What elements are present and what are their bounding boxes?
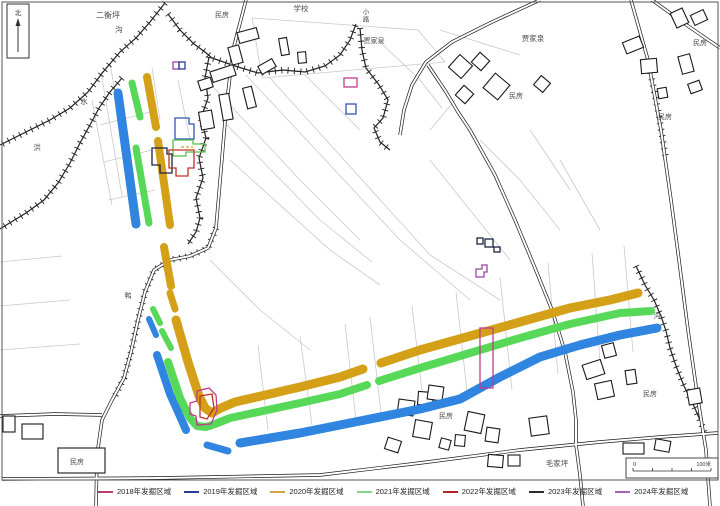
map-label: 沟 [115, 24, 123, 34]
house [455, 85, 473, 103]
map-label: 民房 [509, 91, 523, 100]
legend-item-2022: 2022年发掘区域 [443, 486, 516, 497]
house [210, 65, 236, 83]
house [199, 110, 215, 130]
north-arrow: 北 [7, 4, 29, 58]
band-2020-mid-1 [164, 247, 171, 286]
legend-label: 2024年发掘区域 [634, 486, 688, 497]
map-label: 水 [80, 96, 88, 106]
field-line [230, 160, 380, 285]
house [534, 76, 551, 93]
house [488, 454, 504, 467]
legend-item-2020: 2020年发掘区域 [270, 486, 343, 497]
field-line [246, 75, 470, 300]
band-2021-nw-1 [132, 83, 140, 117]
field-line [222, 120, 372, 262]
sq-2023-c [494, 247, 500, 252]
map-label: 小路 [363, 7, 370, 24]
field-line [252, 18, 418, 30]
poly-2019 [175, 118, 194, 139]
band-2021-mid-1 [153, 309, 160, 323]
house [690, 10, 707, 26]
map-label: 学校 [294, 3, 309, 13]
legend-swatch [184, 491, 199, 493]
legend-item-2019: 2019年发掘区域 [184, 486, 257, 497]
scale-max-label: 100米 [696, 460, 711, 468]
field-line [0, 344, 80, 350]
field-line [480, 140, 560, 230]
north-arrow-label: 北 [15, 9, 22, 17]
band-2019-mid-1 [149, 319, 156, 335]
legend-swatch [615, 491, 630, 493]
house [654, 439, 671, 452]
house [595, 380, 615, 399]
roads-layer [0, 0, 720, 506]
house [243, 86, 257, 109]
field-line [0, 256, 62, 262]
house [439, 438, 451, 450]
field-line [0, 300, 70, 306]
field-line [305, 75, 360, 130]
house [657, 87, 668, 98]
legend-swatch [270, 491, 285, 493]
legend-label: 2022年发掘区域 [462, 486, 516, 497]
field-line [178, 80, 190, 140]
road-east-inner [631, 0, 710, 506]
map-label: 贾家泉 [364, 36, 385, 45]
legend-swatch [443, 491, 458, 493]
house [279, 37, 290, 55]
poly-2024-small [476, 265, 487, 277]
legend-item-2024: 2024年发掘区域 [615, 486, 688, 497]
house [471, 52, 489, 70]
road-cross-bands-inner [470, 130, 576, 445]
field-line [214, 88, 360, 240]
road-cross-bands [470, 130, 576, 445]
house [22, 424, 43, 439]
legend-label: 2023年发掘区域 [548, 486, 602, 497]
map-label: 民房 [439, 411, 453, 420]
field-line [210, 260, 310, 350]
map-label: 鸭 [125, 291, 132, 300]
house [485, 427, 500, 443]
house [298, 52, 307, 64]
house [688, 80, 703, 94]
house [622, 36, 643, 54]
house [258, 59, 276, 75]
field-line [530, 130, 570, 190]
band-2021-mid-2 [162, 331, 171, 348]
house [413, 420, 433, 440]
house [678, 54, 694, 74]
map-figure: 二衡坪民房学校小路贾家泉贾家泉民房民房民房沟水洪鸭沟民房民房毛家坪民房北0100… [0, 0, 720, 506]
legend-item-2023: 2023年发掘区域 [529, 486, 602, 497]
house [384, 437, 401, 453]
legend-label: 2021年发掘区域 [376, 486, 430, 497]
rect-2019-nw [179, 62, 185, 69]
map-label: 毛家坪 [546, 458, 569, 468]
field-line [258, 345, 268, 430]
house [198, 77, 213, 91]
map-label: 民房 [643, 389, 657, 398]
house [623, 443, 644, 454]
map-legend: 2018年发掘区域2019年发掘区域2020年发掘区域2021年发掘区域2022… [98, 486, 688, 497]
road-bottom [2, 433, 718, 479]
band-2019-elbow [207, 445, 228, 451]
road-east [631, 0, 710, 506]
legend-item-2021: 2021年发掘区域 [357, 486, 430, 497]
field-line [430, 100, 455, 130]
gully-north-lower [0, 78, 122, 229]
rect-2018-top [344, 78, 357, 87]
house [529, 416, 549, 436]
plateau-ne-edge [360, 28, 390, 150]
sq-2023-b [485, 239, 493, 247]
map-label: 民房 [215, 10, 229, 19]
band-2019-nw [118, 93, 136, 224]
map-label: 二衡坪 [96, 10, 120, 20]
map-label: 贾家泉 [522, 33, 545, 43]
house [464, 411, 485, 433]
legend-item-2018: 2018年发掘区域 [98, 486, 171, 497]
band-2020-mid-2 [170, 293, 175, 309]
map-label: 民房 [658, 112, 672, 121]
map-label: 洪 [33, 142, 41, 152]
house [455, 435, 466, 447]
excavation-map: 二衡坪民房学校小路贾家泉贾家泉民房民房民房沟水洪鸭沟民房民房毛家坪民房北0100… [0, 0, 720, 506]
house [448, 54, 472, 78]
scale-bar: 0100米 [626, 458, 718, 478]
rect-2024-nw [173, 62, 179, 69]
house [625, 369, 637, 384]
legend-label: 2019年发掘区域 [203, 486, 257, 497]
house [219, 93, 233, 120]
field-line [456, 292, 468, 400]
rect-2019-top [346, 104, 356, 114]
house [687, 388, 702, 405]
scale-zero-label: 0 [633, 462, 636, 468]
map-label: 沟 [654, 311, 661, 320]
field-line [430, 160, 510, 260]
band-end-east-edge [636, 266, 705, 434]
field-line [560, 160, 600, 230]
house [640, 58, 657, 73]
legend-label: 2018年发掘区域 [117, 486, 171, 497]
house [3, 416, 15, 432]
legend-label: 2020年发掘区域 [289, 486, 343, 497]
map-label: 民房 [70, 457, 84, 466]
excavation-bands-layer [118, 77, 657, 451]
house [582, 359, 605, 379]
sq-2023-a [477, 238, 483, 244]
map-label: 民房 [693, 38, 707, 47]
house [508, 455, 520, 466]
house [483, 73, 510, 100]
legend-swatch [98, 491, 113, 493]
house [602, 343, 617, 359]
legend-swatch [529, 491, 544, 493]
house [427, 385, 444, 401]
legend-swatch [357, 491, 372, 493]
